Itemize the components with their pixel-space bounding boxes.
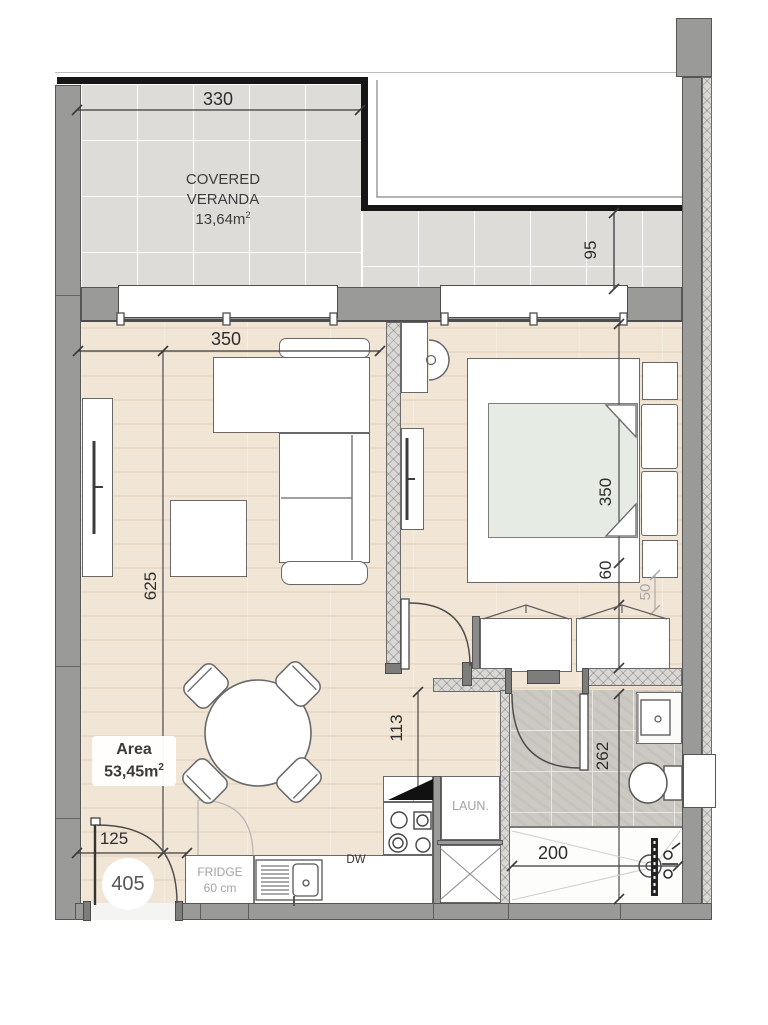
window-bedroom <box>440 285 628 318</box>
unit-number-badge: 405 <box>102 858 154 910</box>
bathroom-sink-counter <box>636 692 682 744</box>
wardrobe-left <box>480 618 572 672</box>
dim-veranda-width: 330 <box>193 90 243 109</box>
fridge-label-line2: 60 cm <box>188 881 252 897</box>
wardrobe-side-wall <box>472 616 480 672</box>
sofa-armrest <box>281 561 368 585</box>
appliance-box <box>437 845 503 903</box>
dim-kitchen-passage: 113 <box>388 706 406 750</box>
wall-bottom-seam-4 <box>508 904 509 919</box>
sofa-chaise <box>213 357 370 433</box>
area-label-value: 53,45m2 <box>92 761 176 784</box>
floor-plan: 330 95 350 625 350 60 50 113 262 200 125… <box>0 0 768 1025</box>
veranda-railing-vertical <box>361 77 368 211</box>
sofa-seat <box>279 433 370 563</box>
veranda-label-line2: VERANDA <box>162 190 284 210</box>
area-label-title: Area <box>92 739 176 761</box>
wall-bottom-seam-3 <box>433 904 434 919</box>
slab-edge-line <box>55 72 690 73</box>
headboard-cushion-top <box>641 404 678 469</box>
veranda-railing-bottom <box>361 205 682 211</box>
coffee-table <box>170 500 247 577</box>
wall-laundry-divider <box>437 840 503 845</box>
mattress <box>488 403 638 538</box>
fridge-divider <box>253 855 255 905</box>
wall-divider-end-cap <box>385 663 402 674</box>
sofa-back <box>279 338 370 358</box>
dim-living-length: 625 <box>142 564 160 608</box>
nightstand-top <box>642 362 678 400</box>
door-frame-bath-right <box>582 668 589 694</box>
desk <box>401 322 428 393</box>
dim-bedroom-length: 350 <box>597 470 615 514</box>
window-living <box>118 285 338 318</box>
shower-floor <box>510 827 682 903</box>
wall-bottom-seam-5 <box>620 904 621 919</box>
dim-bedroom-gap: 60 <box>597 552 615 588</box>
door-jamb-entrance-left <box>83 901 91 921</box>
dim-living-width: 350 <box>201 330 251 349</box>
dim-wardrobe-depth: 50 <box>638 576 656 608</box>
veranda-railing-top <box>57 77 368 84</box>
veranda-label: COVERED VERANDA 13,64m2 <box>162 170 284 230</box>
stove-top-cabinet <box>383 776 433 802</box>
wall-niche-box <box>683 754 716 808</box>
door-frame-bath-left <box>505 668 512 694</box>
door-jamb-entrance-right <box>175 901 183 921</box>
wall-bottom-seam-1 <box>200 904 201 919</box>
dim-entry-width: 125 <box>90 830 138 849</box>
veranda-area: 13,64m2 <box>162 209 284 230</box>
stove <box>383 802 433 855</box>
wardrobe-right <box>576 618 670 672</box>
fridge-label-line1: FRIDGE <box>188 865 252 881</box>
tv-unit-living <box>82 398 113 577</box>
tv-unit-bedroom <box>401 428 424 530</box>
dim-shower-width: 200 <box>528 844 578 863</box>
wall-left-seam-3 <box>56 818 80 819</box>
fridge-label: FRIDGE 60 cm <box>188 865 252 896</box>
door-frame-bedroom <box>462 662 472 686</box>
dim-veranda-depth: 95 <box>582 232 600 268</box>
veranda-label-line1: COVERED <box>162 170 284 190</box>
bathroom-door-threshold <box>527 670 560 684</box>
wall-left <box>55 85 81 920</box>
headboard-cushion-bottom <box>641 471 678 536</box>
laundry-label: LAUN. <box>442 799 499 813</box>
wall-bedroom-bottom-right <box>584 668 682 686</box>
dim-bathroom-length: 262 <box>594 734 612 778</box>
wall-laundry-right <box>500 690 510 905</box>
nightstand-bottom <box>642 540 678 578</box>
wall-left-seam-2 <box>56 666 80 667</box>
dishwasher-label: DW <box>342 854 370 866</box>
wall-right-top-column <box>676 18 712 77</box>
veranda-open-cutout <box>368 77 682 205</box>
veranda-floor-right <box>362 211 682 287</box>
wall-living-bedroom-divider <box>386 322 401 672</box>
wall-left-seam-1 <box>56 295 80 296</box>
area-label: Area 53,45m2 <box>92 736 176 786</box>
wall-bottom-seam-2 <box>248 904 249 919</box>
